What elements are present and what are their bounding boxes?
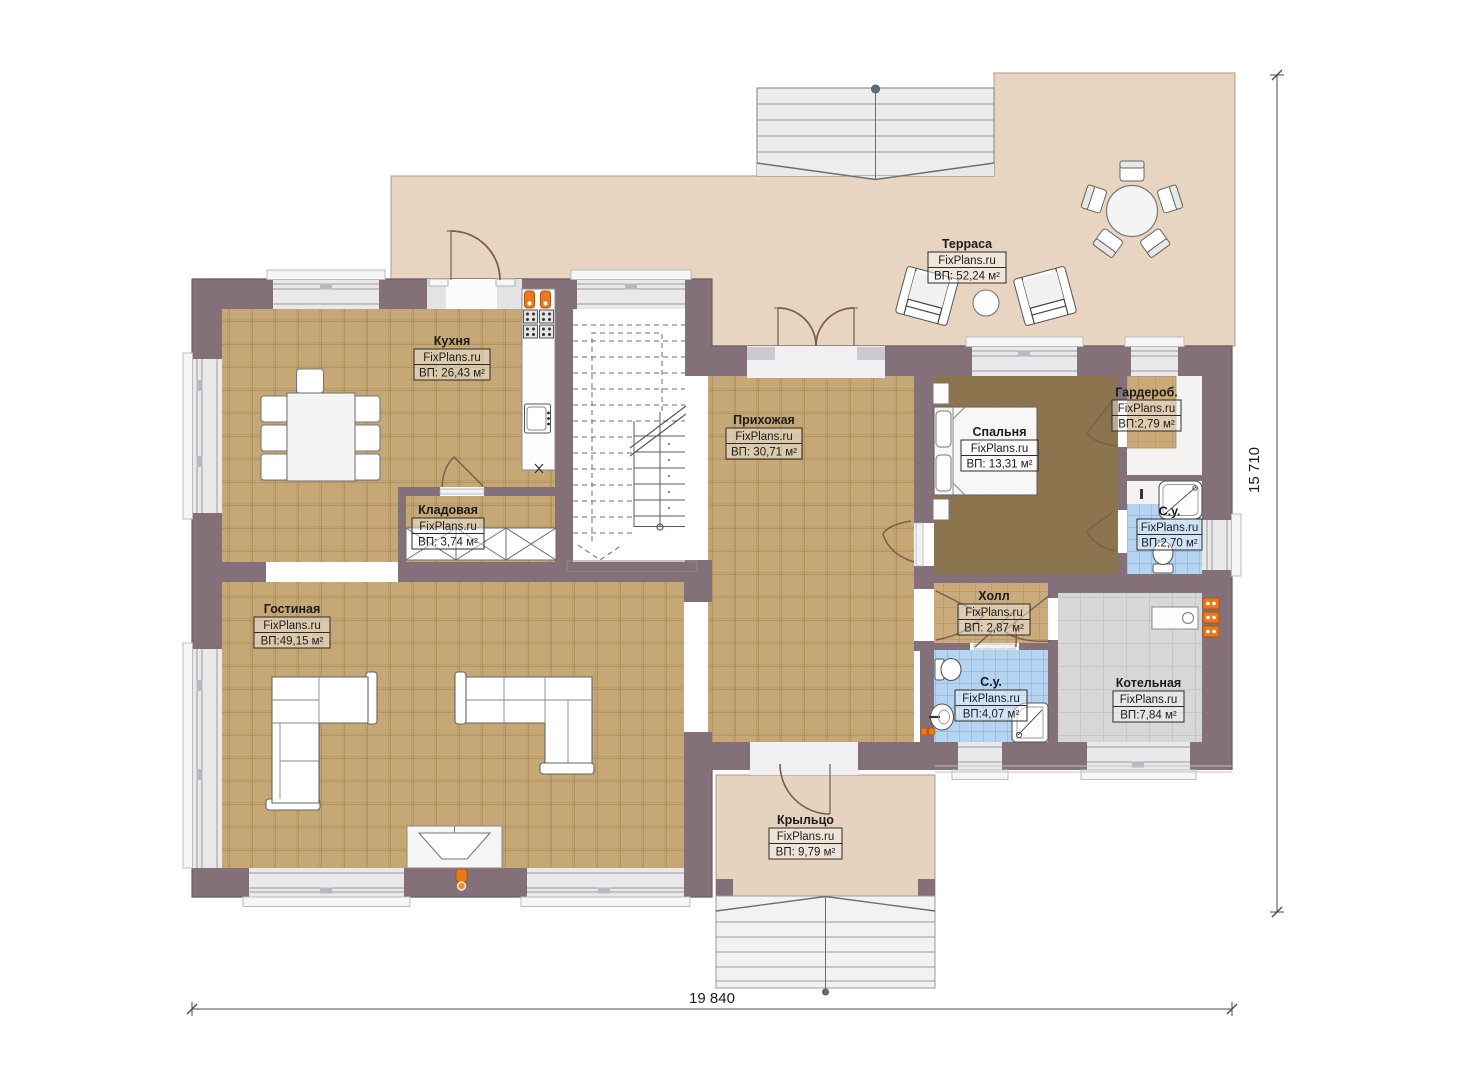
svg-text:FixPlans.ru: FixPlans.ru: [962, 693, 1020, 705]
svg-text:FixPlans.ru: FixPlans.ru: [777, 831, 835, 843]
svg-text:FixPlans.ru: FixPlans.ru: [1118, 403, 1176, 415]
svg-text:FixPlans.ru: FixPlans.ru: [971, 443, 1029, 455]
svg-text:ВП: 52,24 м²: ВП: 52,24 м²: [934, 271, 1000, 283]
svg-text:FixPlans.ru: FixPlans.ru: [263, 620, 321, 632]
svg-text:Крыльцо: Крыльцо: [777, 813, 834, 827]
svg-text:Холл: Холл: [978, 589, 1009, 603]
svg-text:Гостиная: Гостиная: [264, 602, 321, 616]
svg-text:Спальня: Спальня: [973, 425, 1027, 439]
svg-text:Терраса: Терраса: [942, 237, 993, 251]
svg-text:FixPlans.ru: FixPlans.ru: [938, 255, 996, 267]
svg-text:Кухня: Кухня: [434, 334, 471, 348]
svg-text:С.у.: С.у.: [980, 675, 1002, 689]
svg-text:ВП:2,70 м²: ВП:2,70 м²: [1141, 538, 1198, 550]
svg-text:ВП:4,07 м²: ВП:4,07 м²: [963, 709, 1020, 721]
svg-text:19 840: 19 840: [689, 990, 735, 1007]
svg-text:Котельная: Котельная: [1116, 676, 1181, 690]
svg-text:FixPlans.ru: FixPlans.ru: [423, 352, 481, 364]
svg-text:ВП: 2,87 м²: ВП: 2,87 м²: [964, 623, 1024, 635]
svg-text:15 710: 15 710: [1246, 447, 1263, 493]
svg-text:ВП: 9,79 м²: ВП: 9,79 м²: [776, 847, 836, 859]
svg-text:FixPlans.ru: FixPlans.ru: [419, 521, 477, 533]
svg-text:ВП: 3,74 м²: ВП: 3,74 м²: [418, 537, 478, 549]
svg-text:ВП: 30,71 м²: ВП: 30,71 м²: [731, 447, 797, 459]
svg-text:Кладовая: Кладовая: [418, 503, 478, 517]
svg-text:ВП: 13,31 м²: ВП: 13,31 м²: [966, 459, 1032, 471]
svg-text:ВП:2,79 м²: ВП:2,79 м²: [1118, 419, 1175, 431]
svg-text:FixPlans.ru: FixPlans.ru: [965, 607, 1023, 619]
svg-text:FixPlans.ru: FixPlans.ru: [1141, 522, 1199, 534]
svg-text:С.у.: С.у.: [1159, 505, 1181, 519]
svg-text:ВП:49,15 м²: ВП:49,15 м²: [261, 636, 324, 648]
svg-text:ВП:7,84 м²: ВП:7,84 м²: [1120, 710, 1177, 722]
svg-text:ВП: 26,43 м²: ВП: 26,43 м²: [419, 368, 485, 380]
svg-text:FixPlans.ru: FixPlans.ru: [1120, 694, 1178, 706]
svg-text:FixPlans.ru: FixPlans.ru: [735, 431, 793, 443]
svg-text:Прихожая: Прихожая: [733, 413, 795, 427]
svg-text:Гардероб.: Гардероб.: [1115, 386, 1178, 400]
